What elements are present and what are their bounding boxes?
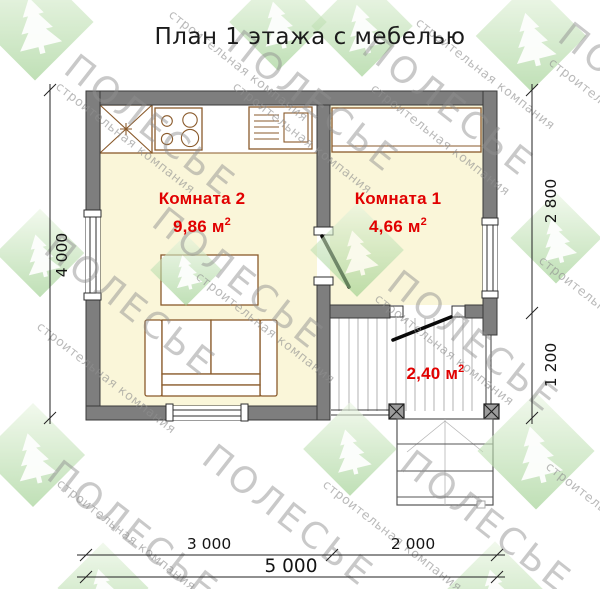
room1-area-sup: 2 [421, 216, 427, 228]
dim-label-right-lower: 1 200 [542, 343, 560, 387]
terrace-area-label: 2,40 м2 [363, 363, 508, 384]
post-left [389, 404, 404, 419]
terrace-area-value: 2,40 м [407, 364, 459, 383]
room1-area-value: 4,66 м [369, 217, 421, 236]
floor-plan-page: { "title": "План 1 этажа с мебелью", "wa… [0, 0, 600, 589]
dim-label-bottom-right: 2 000 [391, 535, 435, 553]
dim-label-right-upper: 2 800 [542, 179, 560, 223]
window-bottom [166, 404, 248, 421]
room2-area-sup: 2 [225, 216, 231, 228]
door1-jamb-bottom [314, 277, 333, 285]
wall-interior-vertical-lower [317, 285, 330, 420]
dim-label-bottom-total: 5 000 [265, 556, 318, 577]
room2-area-value: 9,86 м [173, 217, 225, 236]
room1-area-label: 4,66 м2 [322, 216, 474, 237]
window-right [482, 218, 498, 298]
room2-name-label: Комната 2 [102, 190, 302, 209]
dim-label-bottom-left: 3 000 [187, 535, 231, 553]
terrace-area-sup: 2 [458, 363, 464, 375]
room2-area-label: 9,86 м2 [102, 216, 302, 237]
page-title: План 1 этажа с мебелью [10, 24, 600, 50]
room1-name-label: Комната 1 [322, 190, 474, 209]
post-right [484, 404, 499, 419]
watermark-brand-text: ПОЛЕСЬЕ [39, 453, 226, 589]
dim-label-left-total: 4 000 [53, 233, 71, 277]
floor-plan-svg: ПОЛЕСЬЕПОЛЕСЬЕПОЛЕСЬЕПОЛЕСЬЕПОЛЕСЬЕПОЛЕС… [0, 0, 600, 589]
